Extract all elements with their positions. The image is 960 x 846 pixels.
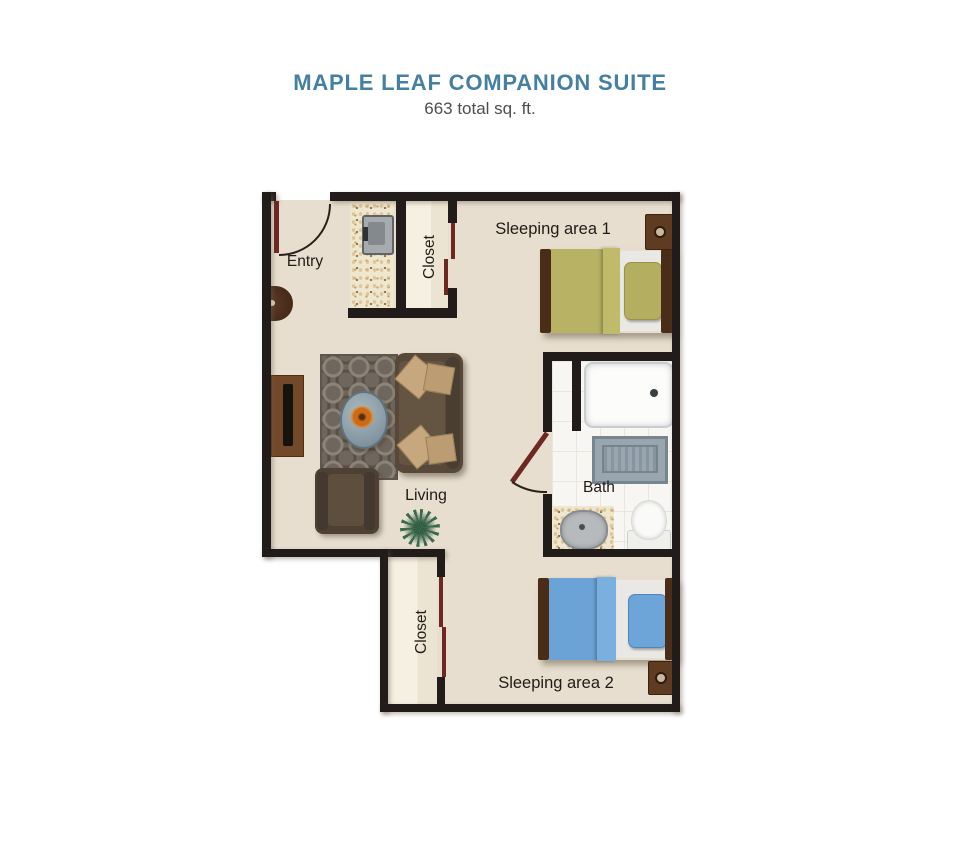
wall-kitchenette bbox=[396, 192, 406, 318]
sleeping-area-2-label: Sleeping area 2 bbox=[480, 674, 632, 693]
wall-bottom bbox=[380, 704, 680, 712]
sofa-pillow bbox=[423, 363, 455, 395]
closet-top-bifold-door bbox=[444, 259, 448, 295]
sofa-pillow bbox=[425, 433, 457, 465]
bed1-blanket-fold bbox=[603, 248, 620, 334]
wall-bath-top bbox=[543, 352, 680, 361]
page-title: MAPLE LEAF COMPANION SUITE bbox=[0, 70, 960, 96]
shower bbox=[584, 362, 674, 428]
wall-right bbox=[672, 192, 680, 712]
flower-centerpiece bbox=[350, 406, 374, 428]
wall-nook-bottom bbox=[348, 308, 456, 318]
closet-bottom-label: Closet bbox=[413, 610, 431, 654]
closet-bottom-bifold-door bbox=[442, 627, 446, 677]
kitchenette-sink-basin bbox=[368, 222, 385, 245]
closet-top-label: Closet bbox=[421, 235, 439, 279]
wall-shower-partition bbox=[572, 361, 581, 431]
wall-closet2-stub-b bbox=[437, 677, 445, 704]
wall-left bbox=[262, 192, 271, 557]
wall-step bbox=[262, 549, 445, 557]
bed2-blanket bbox=[549, 578, 599, 660]
armchair-arm bbox=[364, 472, 375, 530]
wall-closet2-stub-a bbox=[437, 557, 445, 577]
shower-drain bbox=[650, 389, 658, 397]
bed2-blanket-fold bbox=[597, 577, 616, 661]
page-subtitle: 663 total sq. ft. bbox=[0, 99, 960, 119]
wall-closet-top-stub-a bbox=[448, 192, 457, 223]
bath-mat-center bbox=[602, 445, 658, 473]
potted-plant bbox=[400, 509, 440, 547]
armchair-seat bbox=[328, 474, 364, 526]
kitchenette-faucet bbox=[363, 227, 368, 241]
closet-bottom-bifold-door bbox=[439, 577, 443, 627]
sleeping-area-1-label: Sleeping area 1 bbox=[480, 220, 626, 239]
bath-mat bbox=[592, 436, 668, 484]
wall-bath-bottom bbox=[543, 549, 680, 557]
bed2-footboard bbox=[538, 578, 549, 660]
wall-top bbox=[330, 192, 680, 201]
bed2-pillow bbox=[628, 594, 667, 648]
nightstand-knob bbox=[655, 672, 667, 684]
entry-door-leaf bbox=[274, 201, 279, 253]
nightstand-knob bbox=[654, 226, 666, 238]
vanity-faucet bbox=[579, 524, 585, 530]
closet-top-bifold-door bbox=[451, 223, 455, 259]
bed-sleeping-area-2 bbox=[538, 578, 677, 660]
toilet-bowl bbox=[631, 500, 667, 540]
nightstand-sleeping-area-1 bbox=[645, 214, 675, 250]
entry-label: Entry bbox=[276, 253, 334, 271]
bed1-footboard bbox=[540, 249, 551, 333]
wall-left-lower bbox=[380, 549, 388, 712]
floorplan-page: MAPLE LEAF COMPANION SUITE 663 total sq.… bbox=[0, 0, 960, 846]
armchair-arm bbox=[317, 472, 328, 530]
bath-label: Bath bbox=[574, 479, 624, 497]
wall-bath-left-lower bbox=[543, 494, 552, 557]
vanity-sink bbox=[560, 510, 608, 550]
nightstand-sleeping-area-2 bbox=[648, 661, 674, 695]
wall-bath-left-upper bbox=[543, 352, 552, 432]
tv bbox=[283, 384, 293, 446]
wall-closet-top-stub-b bbox=[448, 288, 457, 318]
living-label: Living bbox=[396, 487, 456, 505]
bed1-pillow bbox=[624, 262, 662, 320]
bed-sleeping-area-1 bbox=[540, 249, 673, 333]
bed1-blanket bbox=[551, 249, 605, 333]
